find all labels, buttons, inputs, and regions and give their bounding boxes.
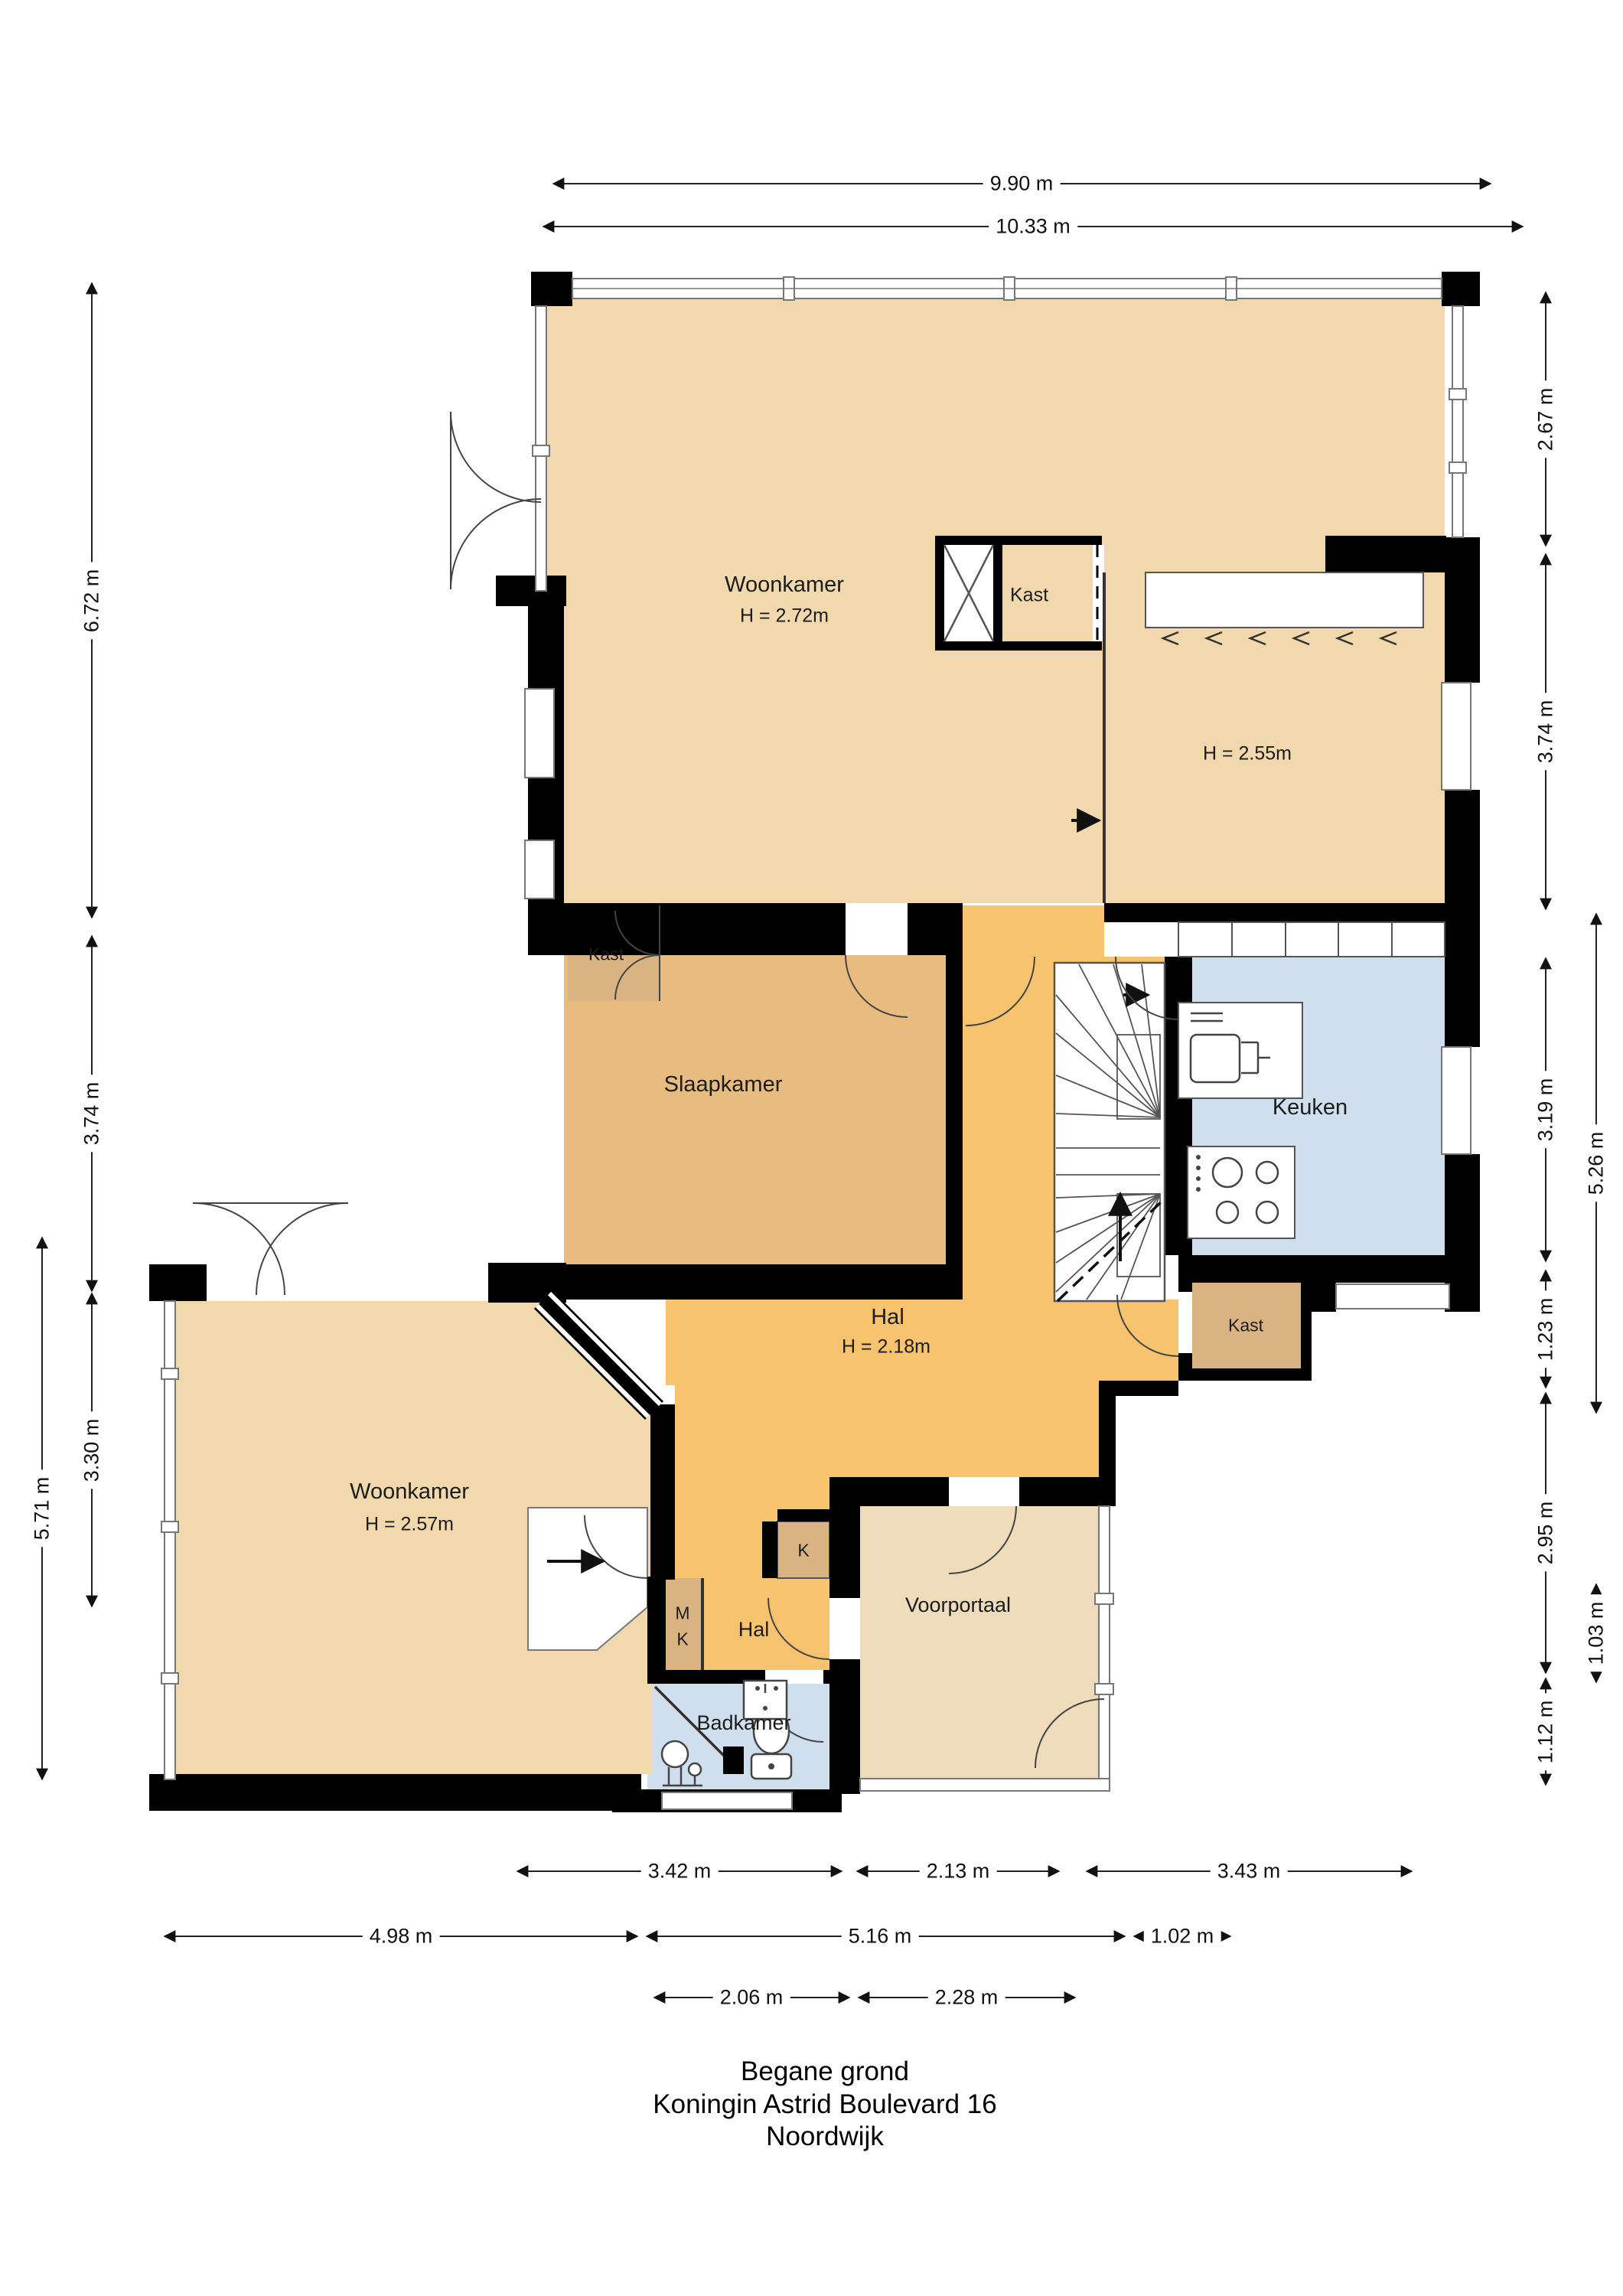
dim-left-571: 5.71 m bbox=[31, 1470, 54, 1548]
room-label-kast-slaapkamer: Kast bbox=[588, 944, 624, 964]
room-label-woonkamer-top: Woonkamer bbox=[725, 573, 844, 598]
room-label-meterkast-m: M bbox=[675, 1603, 689, 1623]
room-label-kast-top: Kast bbox=[1010, 585, 1048, 606]
room-label-keuken: Keuken bbox=[1273, 1096, 1348, 1120]
room-label-slaapkamer: Slaapkamer bbox=[664, 1073, 783, 1097]
floorplan-drawing bbox=[0, 0, 1623, 2296]
dim-right-123: 1.23 m bbox=[1534, 1291, 1558, 1368]
floorplan-page: Woonkamer H = 2.72m Kast H = 2.55m Kast … bbox=[0, 0, 1623, 2296]
dim-bottom-516: 5.16 m bbox=[842, 1925, 919, 1949]
dim-bottom-342: 3.42 m bbox=[641, 1860, 719, 1883]
dim-right-112: 1.12 m bbox=[1534, 1694, 1558, 1771]
dim-left-330: 3.30 m bbox=[80, 1412, 104, 1489]
title-city: Noordwijk bbox=[653, 2121, 996, 2154]
room-label-kast-k: K bbox=[797, 1541, 809, 1560]
room-height-hal: H = 2.18m bbox=[842, 1336, 930, 1358]
dim-bottom-498: 4.98 m bbox=[363, 1925, 440, 1949]
title-address: Koningin Astrid Boulevard 16 bbox=[653, 2089, 996, 2122]
room-label-hal-klein: Hal bbox=[738, 1619, 770, 1642]
title-block: Begane grond Koningin Astrid Boulevard 1… bbox=[653, 2056, 996, 2154]
dim-top-990: 9.90 m bbox=[983, 172, 1061, 196]
dim-top-1033: 10.33 m bbox=[989, 215, 1077, 239]
dim-right-267: 2.67 m bbox=[1534, 381, 1558, 458]
room-label-meterkast-k: K bbox=[676, 1629, 688, 1649]
room-height-woonkamer-top: H = 2.72m bbox=[740, 605, 829, 627]
dim-left-672: 6.72 m bbox=[80, 563, 104, 640]
room-label-voorportaal: Voorportaal bbox=[905, 1594, 1011, 1617]
room-label-badkamer: Badkamer bbox=[696, 1712, 790, 1735]
dim-bottom-228: 2.28 m bbox=[928, 1986, 1005, 2010]
room-height-eethoek: H = 2.55m bbox=[1203, 743, 1292, 765]
kitchen-cabinets bbox=[1178, 922, 1445, 957]
room-label-kast-hal: Kast bbox=[1228, 1316, 1263, 1335]
dim-bottom-213: 2.13 m bbox=[920, 1860, 997, 1883]
mk-divider bbox=[701, 1578, 704, 1670]
dim-right-outer-526: 5.26 m bbox=[1585, 1125, 1608, 1202]
stairs bbox=[1054, 963, 1165, 1301]
dim-right-319: 3.19 m bbox=[1534, 1071, 1558, 1149]
room-height-woonkamer-beneden: H = 2.57m bbox=[365, 1514, 454, 1535]
title-floor: Begane grond bbox=[653, 2056, 996, 2089]
dim-right-295: 2.95 m bbox=[1534, 1495, 1558, 1572]
room-label-woonkamer-beneden: Woonkamer bbox=[350, 1480, 469, 1505]
dim-right-374: 3.74 m bbox=[1534, 693, 1558, 771]
dim-left-374: 3.74 m bbox=[80, 1075, 104, 1153]
dim-bottom-206: 2.06 m bbox=[713, 1986, 790, 2010]
stove-icon bbox=[1188, 1146, 1295, 1238]
dim-bottom-102: 1.02 m bbox=[1144, 1925, 1221, 1949]
kitchen-sink-icon bbox=[1178, 1003, 1302, 1098]
dim-bottom-343: 3.43 m bbox=[1211, 1860, 1288, 1883]
dim-right-outer-103: 1.03 m bbox=[1585, 1595, 1608, 1672]
room-label-hal: Hal bbox=[871, 1306, 904, 1330]
